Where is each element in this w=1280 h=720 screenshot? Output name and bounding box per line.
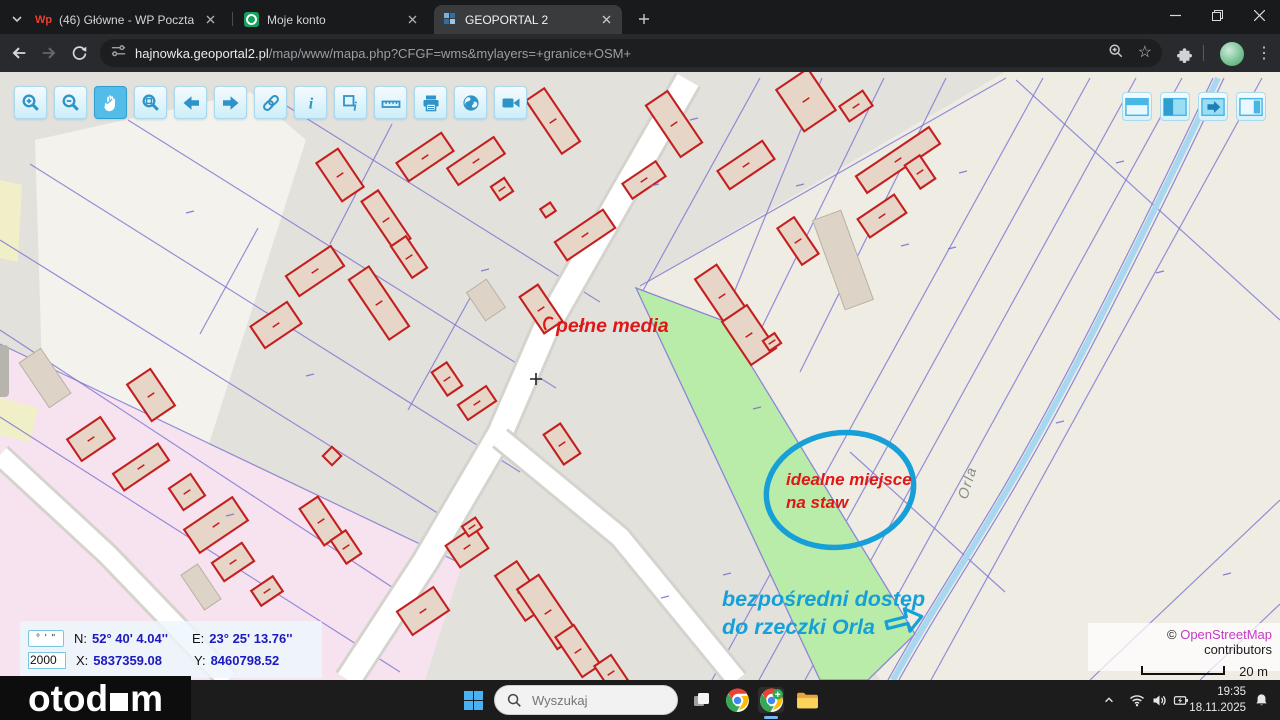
layout-arrow-icon[interactable] — [1198, 92, 1228, 121]
lon-value: 23° 25' 13.76'' — [209, 631, 292, 646]
tab-search-chevron-icon[interactable] — [8, 10, 26, 28]
map-canvas[interactable]: pełne media idealne miejsce na staw bezp… — [0, 72, 1280, 680]
globe-icon[interactable] — [454, 86, 487, 119]
browser-nav-bar: hajnowka.geoportal2.pl/map/www/mapa.php?… — [0, 34, 1280, 72]
wifi-icon[interactable] — [1128, 691, 1146, 709]
start-button[interactable] — [460, 687, 486, 713]
nav-separator — [1203, 45, 1204, 61]
search-input[interactable] — [530, 692, 654, 709]
scale-label: 20 m — [1239, 664, 1268, 679]
svg-text:i: i — [308, 95, 313, 112]
dms-toggle-button[interactable]: ° ' " — [28, 630, 64, 647]
map-layout-panel — [1122, 92, 1266, 121]
active-app-indicator — [764, 716, 778, 719]
map-toolbar: i i — [14, 86, 527, 119]
geoportal-icon — [442, 12, 457, 27]
copyright-symbol: © — [1167, 627, 1177, 642]
tray-chevron-icon[interactable] — [1100, 691, 1118, 709]
tab-separator — [232, 12, 233, 26]
watermark-square-icon — [110, 693, 128, 711]
tab-close-icon[interactable] — [202, 12, 218, 28]
windows-taskbar: 19:35 18.11.2025 — [0, 680, 1280, 720]
profile-avatar[interactable] — [1220, 42, 1244, 66]
clock-date: 18.11.2025 — [1189, 700, 1246, 716]
osm-link[interactable]: OpenStreetMap — [1180, 627, 1272, 642]
pan-right-icon[interactable] — [214, 86, 247, 119]
chrome-active-icon[interactable] — [758, 687, 784, 713]
zoom-in-icon[interactable] — [14, 86, 47, 119]
tab-moje-konto[interactable]: Moje konto — [236, 5, 428, 34]
lat-label: N: — [74, 631, 87, 646]
link-icon[interactable] — [254, 86, 287, 119]
taskbar-clock[interactable]: 19:35 18.11.2025 — [1189, 684, 1246, 716]
watermark-text: m — [130, 678, 163, 719]
svg-text:i: i — [353, 98, 357, 113]
url-path: /map/www/mapa.php?CFGF=wms&mylayers=+gra… — [269, 46, 631, 61]
layout-left-icon[interactable] — [1160, 92, 1190, 121]
volume-icon[interactable] — [1150, 691, 1168, 709]
url-text: hajnowka.geoportal2.pl/map/www/mapa.php?… — [135, 46, 631, 61]
lon-label: E: — [192, 631, 204, 646]
task-view-icon[interactable] — [688, 687, 714, 713]
tab-close-icon[interactable] — [598, 12, 614, 28]
account-icon — [244, 12, 259, 27]
chrome-icon[interactable] — [724, 687, 750, 713]
annotation-dostep-2: do rzeczki Orla — [722, 615, 875, 639]
map-viewport[interactable]: pełne media idealne miejsce na staw bezp… — [0, 72, 1280, 680]
taskbar-search[interactable] — [494, 685, 678, 715]
extensions-puzzle-icon[interactable] — [1172, 42, 1196, 66]
watermark-text: otod — [28, 678, 108, 719]
clock-time: 19:35 — [1189, 684, 1246, 700]
tab-title: (46) Główne - WP Poczta — [59, 13, 194, 27]
annotation-idealne-2: na staw — [786, 493, 850, 512]
map-attribution: © OpenStreetMap contributors 20 m — [1088, 623, 1280, 671]
print-icon[interactable] — [414, 86, 447, 119]
video-icon[interactable] — [494, 86, 527, 119]
x-value: 5837359.08 — [93, 653, 162, 668]
bookmark-star-icon[interactable]: ☆ — [1138, 45, 1152, 61]
annotation-idealne-1: idealne miejsce — [786, 470, 912, 489]
battery-icon[interactable] — [1172, 691, 1190, 709]
back-icon[interactable] — [8, 42, 30, 64]
url-bar[interactable]: hajnowka.geoportal2.pl/map/www/mapa.php?… — [100, 39, 1162, 67]
tab-geoportal[interactable]: GEOPORTAL 2 — [434, 5, 622, 34]
collapsed-panel-handle[interactable] — [0, 345, 9, 397]
browser-menu-icon[interactable]: ⋮ — [1252, 42, 1276, 66]
scale-input[interactable] — [28, 652, 66, 669]
site-settings-icon[interactable] — [110, 42, 127, 64]
tab-wp-poczta[interactable]: Wp (46) Główne - WP Poczta — [28, 5, 226, 34]
measure-icon[interactable] — [374, 86, 407, 119]
scale-bar — [1141, 666, 1225, 675]
pan-hand-icon[interactable] — [94, 86, 127, 119]
otodom-watermark: otodm — [0, 676, 191, 720]
window-close-button[interactable] — [1238, 0, 1280, 30]
zoom-box-icon[interactable] — [134, 86, 167, 119]
x-label: X: — [76, 653, 88, 668]
window-maximize-button[interactable] — [1196, 0, 1238, 30]
window-minimize-button[interactable] — [1154, 0, 1196, 30]
y-label: Y: — [194, 653, 206, 668]
tab-close-icon[interactable] — [404, 12, 420, 28]
forward-icon[interactable] — [38, 42, 60, 64]
url-host: hajnowka.geoportal2.pl — [135, 46, 269, 61]
y-value: 8460798.52 — [211, 653, 280, 668]
pan-left-icon[interactable] — [174, 86, 207, 119]
notification-bell-icon[interactable] — [1252, 691, 1270, 709]
zoom-page-icon[interactable] — [1108, 43, 1124, 64]
screen: Wp (46) Główne - WP Poczta Moje konto — [0, 0, 1280, 720]
layout-right-icon[interactable] — [1236, 92, 1266, 121]
reload-icon[interactable] — [68, 42, 90, 64]
coordinates-panel: ° ' " N:52° 40' 4.04'' E:23° 25' 13.76''… — [20, 621, 322, 678]
search-icon — [507, 693, 522, 708]
zoom-out-icon[interactable] — [54, 86, 87, 119]
tab-title: GEOPORTAL 2 — [465, 13, 548, 27]
select-info-icon[interactable]: i — [334, 86, 367, 119]
annotation-dostep-1: bezpośredni dostęp — [722, 587, 925, 611]
new-tab-button[interactable] — [634, 9, 654, 29]
browser-tab-bar: Wp (46) Główne - WP Poczta Moje konto — [0, 0, 1280, 34]
annotation-pelne-media: pełne media — [555, 315, 669, 337]
wp-icon: Wp — [36, 12, 51, 27]
file-explorer-icon[interactable] — [794, 687, 820, 713]
lat-value: 52° 40' 4.04'' — [92, 631, 168, 646]
contributors-text: contributors — [1204, 642, 1272, 657]
layout-top-icon[interactable] — [1122, 92, 1152, 121]
info-icon[interactable]: i — [294, 86, 327, 119]
tab-title: Moje konto — [267, 13, 326, 27]
